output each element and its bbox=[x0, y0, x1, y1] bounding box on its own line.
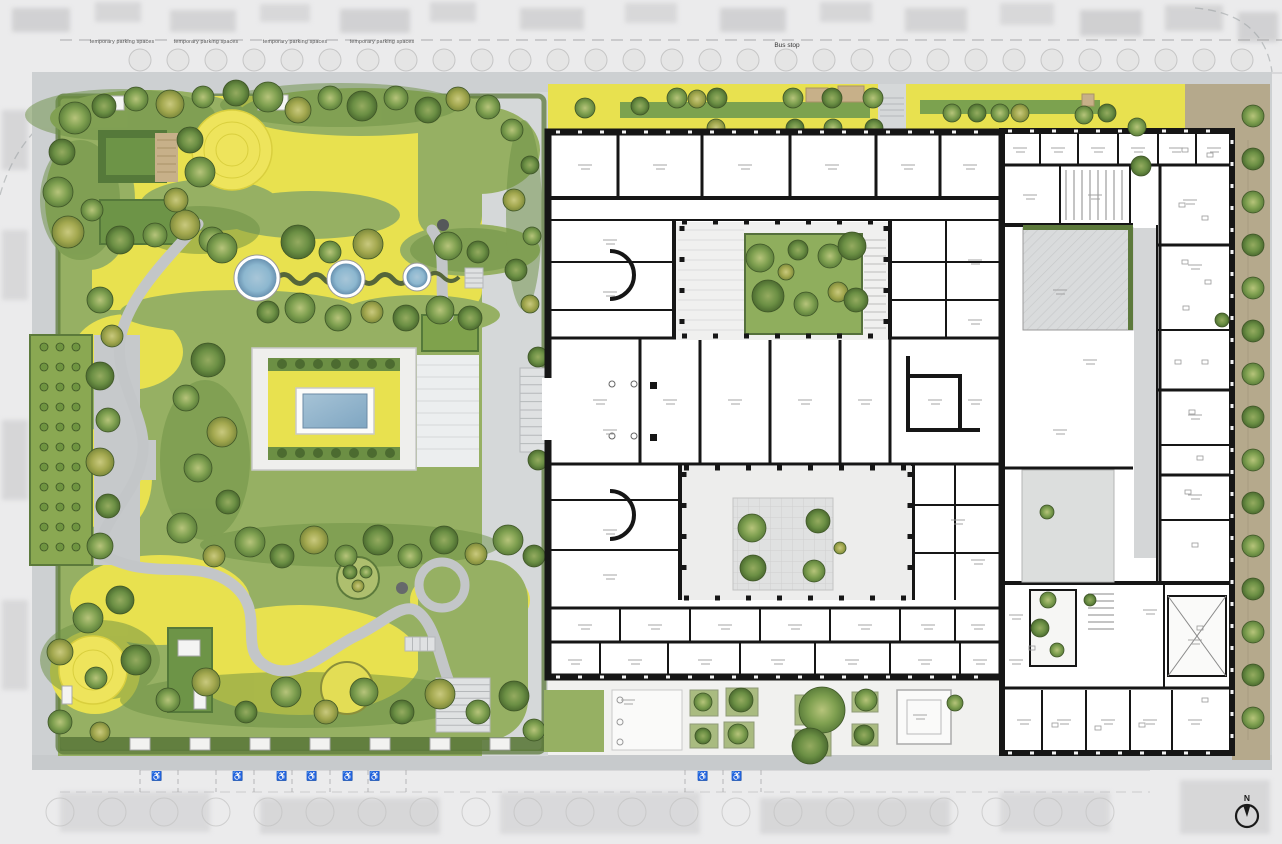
context-tree-icon bbox=[1041, 49, 1063, 71]
pond bbox=[238, 259, 276, 297]
tree-icon bbox=[783, 88, 803, 108]
orchard-tree-icon bbox=[56, 363, 64, 371]
context-tree-icon bbox=[1193, 49, 1215, 71]
tree-icon bbox=[1011, 104, 1029, 122]
tree-icon bbox=[523, 719, 545, 741]
tree-icon bbox=[746, 244, 774, 272]
tree-icon bbox=[854, 725, 874, 745]
orchard-tree-icon bbox=[40, 343, 48, 351]
pergola-post bbox=[310, 738, 330, 750]
tree-icon bbox=[799, 687, 845, 733]
tree-icon bbox=[143, 223, 167, 247]
tree-icon bbox=[361, 301, 383, 323]
tree-icon bbox=[1040, 505, 1054, 519]
orchard-tree-icon bbox=[72, 443, 80, 451]
tree-icon bbox=[170, 210, 200, 240]
orchard-tree-icon bbox=[56, 523, 64, 531]
context-tree-icon bbox=[433, 49, 455, 71]
tree-icon bbox=[90, 722, 110, 742]
orchard-tree-icon bbox=[40, 463, 48, 471]
tree-icon bbox=[49, 139, 75, 165]
tree-icon bbox=[947, 695, 963, 711]
tree-icon bbox=[1242, 578, 1264, 600]
context-tree-icon bbox=[167, 49, 189, 71]
accessible-parking-icon: ♿ bbox=[151, 770, 162, 781]
pond bbox=[407, 267, 427, 287]
context-tree-icon bbox=[661, 49, 683, 71]
tree-icon bbox=[73, 603, 103, 633]
accessible-parking-icon: ♿ bbox=[276, 770, 287, 781]
tree-icon bbox=[1075, 106, 1093, 124]
orchard-tree-icon bbox=[72, 363, 80, 371]
tree-icon bbox=[285, 97, 311, 123]
context-tree-icon bbox=[737, 49, 759, 71]
parking-label: temporary parking spaces bbox=[174, 39, 239, 45]
orchard-tree-icon bbox=[40, 443, 48, 451]
tree-icon bbox=[415, 97, 441, 123]
orchard-tree-icon bbox=[56, 383, 64, 391]
tree-icon bbox=[575, 98, 595, 118]
tree-icon bbox=[695, 728, 711, 744]
orchard-tree-icon bbox=[40, 363, 48, 371]
wing-courtyard-paved bbox=[1023, 228, 1133, 330]
tree-icon bbox=[177, 127, 203, 153]
tree-icon bbox=[300, 526, 328, 554]
tree-icon bbox=[493, 525, 523, 555]
tree-icon bbox=[43, 177, 73, 207]
tree-icon bbox=[398, 544, 422, 568]
context-tree-icon bbox=[585, 49, 607, 71]
tree-icon bbox=[124, 87, 148, 111]
tree-icon bbox=[694, 693, 712, 711]
context-tree-icon bbox=[699, 49, 721, 71]
tree-icon bbox=[458, 306, 482, 330]
tree-icon bbox=[48, 710, 72, 734]
tree-icon bbox=[393, 305, 419, 331]
orchard-tree-icon bbox=[72, 523, 80, 531]
tree-icon bbox=[360, 566, 372, 578]
tree-icon bbox=[353, 229, 383, 259]
pergola-post bbox=[430, 738, 450, 750]
tree-icon bbox=[1242, 449, 1264, 471]
tree-icon bbox=[707, 88, 727, 108]
tree-icon bbox=[1128, 118, 1146, 136]
building-main bbox=[542, 132, 1002, 677]
tree-icon bbox=[434, 232, 462, 260]
orchard-tree-icon bbox=[72, 403, 80, 411]
tree-icon bbox=[1131, 156, 1151, 176]
tree-icon bbox=[505, 259, 527, 281]
context-tree-icon bbox=[889, 49, 911, 71]
site-plan-canvas: ♿♿♿♿♿♿♿♿ temporary parking spacestempora… bbox=[0, 0, 1282, 844]
tree-icon bbox=[86, 448, 114, 476]
orchard-tree-icon bbox=[56, 483, 64, 491]
context-tree-icon bbox=[813, 49, 835, 71]
accessible-parking-icon: ♿ bbox=[697, 770, 708, 781]
context-tree-icon bbox=[395, 49, 417, 71]
tree-icon bbox=[156, 688, 180, 712]
tree-icon bbox=[106, 226, 134, 254]
parking-label: temporary parking spaces bbox=[350, 39, 415, 45]
tree-icon bbox=[216, 490, 240, 514]
context-tree-icon bbox=[319, 49, 341, 71]
reflecting-pool bbox=[296, 388, 374, 434]
tree-icon bbox=[738, 514, 766, 542]
tree-icon bbox=[192, 86, 214, 108]
tree-icon bbox=[806, 509, 830, 533]
tree-icon bbox=[325, 305, 351, 331]
stairs bbox=[405, 637, 435, 651]
tree-icon bbox=[446, 87, 470, 111]
tree-icon bbox=[1242, 105, 1264, 127]
tree-icon bbox=[92, 94, 116, 118]
site-plan-svg: ♿♿♿♿♿♿♿♿ temporary parking spacestempora… bbox=[0, 0, 1282, 844]
tree-icon bbox=[86, 362, 114, 390]
orchard-tree-icon bbox=[72, 383, 80, 391]
orchard-tree-icon bbox=[56, 503, 64, 511]
tree-icon bbox=[318, 86, 342, 110]
pool-water bbox=[303, 394, 367, 428]
pond bbox=[331, 264, 361, 294]
orchard-tree-icon bbox=[40, 503, 48, 511]
orchard-tree-icon bbox=[72, 343, 80, 351]
orchard-tree-icon bbox=[72, 483, 80, 491]
orchard-tree-icon bbox=[56, 423, 64, 431]
tree-icon bbox=[822, 88, 842, 108]
stairs bbox=[465, 268, 483, 288]
tree-icon bbox=[384, 86, 408, 110]
west-entrance-gap bbox=[542, 378, 553, 440]
tree-icon bbox=[728, 724, 748, 744]
orchard-tree-icon bbox=[72, 543, 80, 551]
tree-icon bbox=[106, 586, 134, 614]
tree-icon bbox=[173, 385, 199, 411]
context-tree-icon bbox=[1079, 49, 1101, 71]
tree-icon bbox=[466, 700, 490, 724]
orchard-tree-icon bbox=[56, 463, 64, 471]
east-paving bbox=[417, 355, 479, 467]
tree-icon bbox=[425, 679, 455, 709]
tree-icon bbox=[523, 545, 545, 567]
tree-icon bbox=[501, 119, 523, 141]
tree-icon bbox=[343, 565, 357, 579]
tree-icon bbox=[121, 645, 151, 675]
tree-icon bbox=[1031, 619, 1049, 637]
tree-icon bbox=[207, 417, 237, 447]
wing-hall-floor bbox=[1022, 470, 1114, 582]
tree-icon bbox=[803, 560, 825, 582]
tree-icon bbox=[314, 700, 338, 724]
pergola-post bbox=[490, 738, 510, 750]
tree-icon bbox=[1050, 643, 1064, 657]
bus-stop-label: Bus stop bbox=[774, 42, 800, 49]
tree-icon bbox=[271, 677, 301, 707]
context-tree-icon bbox=[1117, 49, 1139, 71]
tree-icon bbox=[1242, 664, 1264, 686]
tree-icon bbox=[347, 91, 377, 121]
tree-icon bbox=[223, 80, 249, 106]
north-label: N bbox=[1244, 793, 1250, 803]
tree-icon bbox=[834, 542, 846, 554]
wing-ramp bbox=[1134, 228, 1156, 558]
central-pool-court bbox=[252, 348, 416, 470]
tree-icon bbox=[85, 667, 107, 689]
tree-icon bbox=[363, 525, 393, 555]
tree-icon bbox=[863, 88, 883, 108]
pergola-post bbox=[130, 738, 150, 750]
tree-icon bbox=[521, 295, 539, 313]
orchard-tree-icon bbox=[40, 423, 48, 431]
orchard-tree-icon bbox=[56, 543, 64, 551]
tree-icon bbox=[96, 408, 120, 432]
tree-icon bbox=[1242, 707, 1264, 729]
tree-icon bbox=[1215, 313, 1229, 327]
tree-icon bbox=[319, 241, 341, 263]
tree-icon bbox=[203, 545, 225, 567]
orchard-tree-icon bbox=[40, 543, 48, 551]
tree-icon bbox=[350, 678, 378, 706]
tree-icon bbox=[844, 288, 868, 312]
tree-icon bbox=[352, 580, 364, 592]
tree-icon bbox=[752, 280, 784, 312]
tree-icon bbox=[1242, 621, 1264, 643]
tree-icon bbox=[523, 227, 541, 245]
tree-icon bbox=[156, 90, 184, 118]
tree-icon bbox=[991, 104, 1009, 122]
context-tree-icon bbox=[623, 49, 645, 71]
tree-icon bbox=[235, 527, 265, 557]
accessible-parking-icon: ♿ bbox=[731, 770, 742, 781]
tree-icon bbox=[430, 526, 458, 554]
tree-icon bbox=[1098, 104, 1116, 122]
tree-icon bbox=[426, 296, 454, 324]
orchard-tree-icon bbox=[40, 403, 48, 411]
tree-icon bbox=[87, 287, 113, 313]
tree-icon bbox=[740, 555, 766, 581]
tree-icon bbox=[285, 293, 315, 323]
parking-label: temporary parking spaces bbox=[263, 39, 328, 45]
tree-icon bbox=[52, 216, 84, 248]
tree-icon bbox=[1242, 363, 1264, 385]
tree-icon bbox=[729, 688, 753, 712]
forecourt bbox=[544, 677, 1002, 756]
tree-icon bbox=[1242, 277, 1264, 299]
tree-icon bbox=[778, 264, 794, 280]
lower-courtyard bbox=[682, 466, 912, 600]
orchard-tree-icon bbox=[56, 403, 64, 411]
context-tree-icon bbox=[1231, 49, 1253, 71]
context-tree-icon bbox=[1155, 49, 1177, 71]
tree-icon bbox=[688, 90, 706, 108]
tree-icon bbox=[1084, 594, 1096, 606]
tree-icon bbox=[467, 241, 489, 263]
right-tree-strip bbox=[1242, 105, 1264, 729]
context-tree-icon bbox=[205, 49, 227, 71]
tree-icon bbox=[465, 543, 487, 565]
context-tree-icon bbox=[851, 49, 873, 71]
tree-icon bbox=[191, 343, 225, 377]
context-tree-icon bbox=[927, 49, 949, 71]
tree-icon bbox=[87, 533, 113, 559]
context-tree-icon bbox=[509, 49, 531, 71]
tree-icon bbox=[167, 513, 197, 543]
orchard-tree-icon bbox=[72, 463, 80, 471]
tree-icon bbox=[184, 454, 212, 482]
tree-icon bbox=[838, 232, 866, 260]
accessible-parking-icon: ♿ bbox=[232, 770, 243, 781]
building-right-wing bbox=[1002, 118, 1232, 753]
tree-icon bbox=[257, 301, 279, 323]
tree-icon bbox=[1242, 234, 1264, 256]
tree-icon bbox=[185, 157, 215, 187]
tree-icon bbox=[81, 199, 103, 221]
context-tree-icon bbox=[1003, 49, 1025, 71]
tree-icon bbox=[253, 82, 283, 112]
context-tree-icon bbox=[243, 49, 265, 71]
tree-icon bbox=[235, 701, 257, 723]
tree-icon bbox=[521, 156, 539, 174]
orchard-tree-icon bbox=[72, 503, 80, 511]
context-tree-icon bbox=[281, 49, 303, 71]
context-tree-icon bbox=[775, 49, 797, 71]
orchard-tree-icon bbox=[40, 383, 48, 391]
orchard-tree-icon bbox=[72, 423, 80, 431]
orchard-tree-icon bbox=[56, 343, 64, 351]
tree-icon bbox=[1242, 320, 1264, 342]
tree-icon bbox=[855, 689, 877, 711]
accessible-parking-icon: ♿ bbox=[342, 770, 353, 781]
tree-icon bbox=[968, 104, 986, 122]
context-tree-icon bbox=[471, 49, 493, 71]
tree-icon bbox=[1242, 148, 1264, 170]
accessible-parking-icon: ♿ bbox=[369, 770, 380, 781]
tree-icon bbox=[792, 728, 828, 764]
tree-icon bbox=[281, 225, 315, 259]
tree-icon bbox=[1242, 492, 1264, 514]
tree-icon bbox=[1242, 191, 1264, 213]
tree-icon bbox=[207, 233, 237, 263]
tree-icon bbox=[1040, 592, 1056, 608]
tree-icon bbox=[1242, 406, 1264, 428]
tree-icon bbox=[96, 494, 120, 518]
tree-icon bbox=[192, 668, 220, 696]
tree-icon bbox=[503, 189, 525, 211]
context-tree-icon bbox=[357, 49, 379, 71]
tree-icon bbox=[667, 88, 687, 108]
tree-icon bbox=[101, 325, 123, 347]
tree-icon bbox=[631, 97, 649, 115]
tree-icon bbox=[59, 102, 91, 134]
tree-icon bbox=[47, 639, 73, 665]
tree-icon bbox=[476, 95, 500, 119]
tree-icon bbox=[390, 700, 414, 724]
tree-icon bbox=[499, 681, 529, 711]
tree-icon bbox=[788, 240, 808, 260]
tree-icon bbox=[1242, 535, 1264, 557]
context-tree-icon bbox=[547, 49, 569, 71]
pergola-post bbox=[370, 738, 390, 750]
context-tree-icon bbox=[965, 49, 987, 71]
tree-icon bbox=[794, 292, 818, 316]
context-tree-icon bbox=[129, 49, 151, 71]
pergola-post bbox=[190, 738, 210, 750]
garden-layer bbox=[25, 80, 546, 756]
tree-icon bbox=[270, 544, 294, 568]
orchard-tree-icon bbox=[40, 483, 48, 491]
parking-label: temporary parking spaces bbox=[90, 39, 155, 45]
orchard-tree-icon bbox=[56, 443, 64, 451]
tree-icon bbox=[943, 104, 961, 122]
tree-icon bbox=[164, 188, 188, 212]
accessible-parking-icon: ♿ bbox=[306, 770, 317, 781]
pergola-post bbox=[250, 738, 270, 750]
orchard-tree-icon bbox=[40, 523, 48, 531]
tree-icon bbox=[335, 545, 357, 567]
